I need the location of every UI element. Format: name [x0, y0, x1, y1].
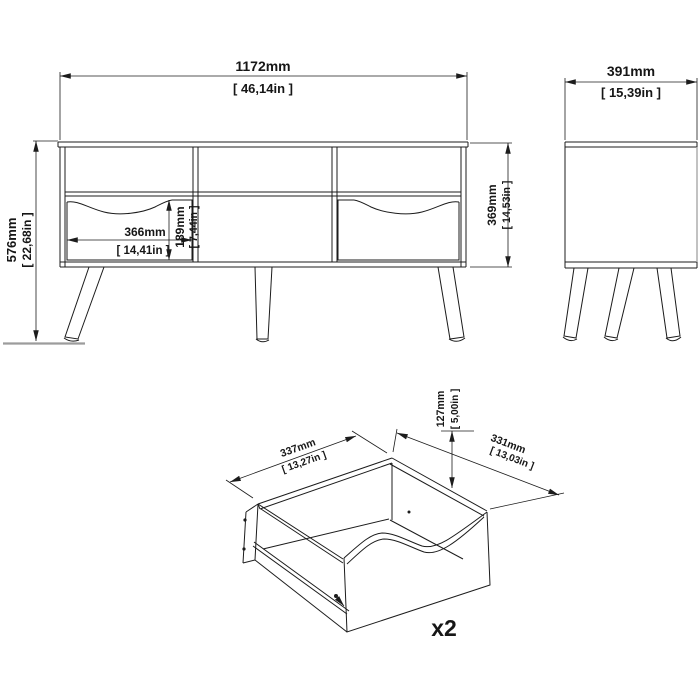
- drawer-screw: [243, 518, 246, 521]
- quantity-label: x2: [431, 615, 457, 641]
- dim-side-depth: 391mm [ 15,39in ]: [565, 63, 697, 140]
- front-view: [58, 142, 468, 342]
- front-shelf: [65, 192, 461, 196]
- dim-detail-height-mm: 127mm: [435, 391, 447, 428]
- front-right-drawer: [338, 200, 459, 260]
- drawer-slide-rail: [253, 542, 349, 614]
- side-outline: [565, 142, 697, 268]
- dim-drawer-front-height-mm: 189mm: [173, 206, 187, 247]
- dim-detail-width: 337mm [ 13,27in ]: [226, 431, 387, 498]
- drawer-front-panel: [344, 512, 490, 632]
- drawer-detail-view: [242, 458, 490, 632]
- dim-drawer-front-width-mm: 366mm: [124, 225, 165, 239]
- dim-front-drawer-height: 189mm [ 7,44in ]: [169, 200, 200, 260]
- front-top-panel: [58, 142, 468, 147]
- side-legs: [563, 268, 681, 341]
- right-drawer-wave-handle: [354, 200, 459, 214]
- drawer-back-hole: [408, 511, 411, 514]
- dim-front-width: 1172mm [ 46,14in ]: [60, 58, 467, 140]
- dim-side-depth-mm: 391mm: [607, 63, 655, 79]
- drawer-back-panel: [258, 458, 392, 509]
- dim-detail-height-in: [ 5,00in ]: [450, 389, 461, 430]
- front-bottom-panel: [60, 262, 466, 267]
- drawer-screw: [242, 547, 245, 550]
- dim-front-height-in: [ 22,68in ]: [20, 212, 34, 267]
- dim-detail-depth: 331mm [ 13,03in ]: [393, 429, 564, 509]
- drawer-interior: [263, 519, 463, 559]
- front-legs: [64, 267, 465, 342]
- dim-body-height-in: [ 14,53in ]: [501, 181, 513, 230]
- dim-drawer-front-width-in: [ 14,41in ]: [116, 245, 169, 257]
- dim-drawer-front-height-in: [ 7,44in ]: [188, 206, 200, 249]
- drawer-screw: [334, 594, 338, 598]
- drawing-page: 1172mm [ 46,14in ] 576mm [ 22,68in ] 369…: [0, 0, 700, 700]
- dim-front-width-mm: 1172mm: [235, 58, 290, 74]
- drawing-canvas: 1172mm [ 46,14in ] 576mm [ 22,68in ] 369…: [0, 0, 700, 700]
- left-drawer-wave-handle: [67, 200, 172, 214]
- dim-front-width-in: [ 46,14in ]: [233, 81, 293, 96]
- dim-front-body-height: 369mm [ 14,53in ]: [470, 143, 513, 267]
- front-dividers: [193, 147, 337, 262]
- dim-side-depth-in: [ 15,39in ]: [601, 85, 661, 100]
- dim-detail-height: 127mm [ 5,00in ]: [435, 389, 474, 488]
- dim-body-height-mm: 369mm: [485, 184, 499, 225]
- side-view: [563, 142, 697, 341]
- dim-front-height-mm: 576mm: [4, 218, 19, 263]
- drawer-right-side: [390, 458, 487, 516]
- drawer-left-side: [242, 504, 349, 632]
